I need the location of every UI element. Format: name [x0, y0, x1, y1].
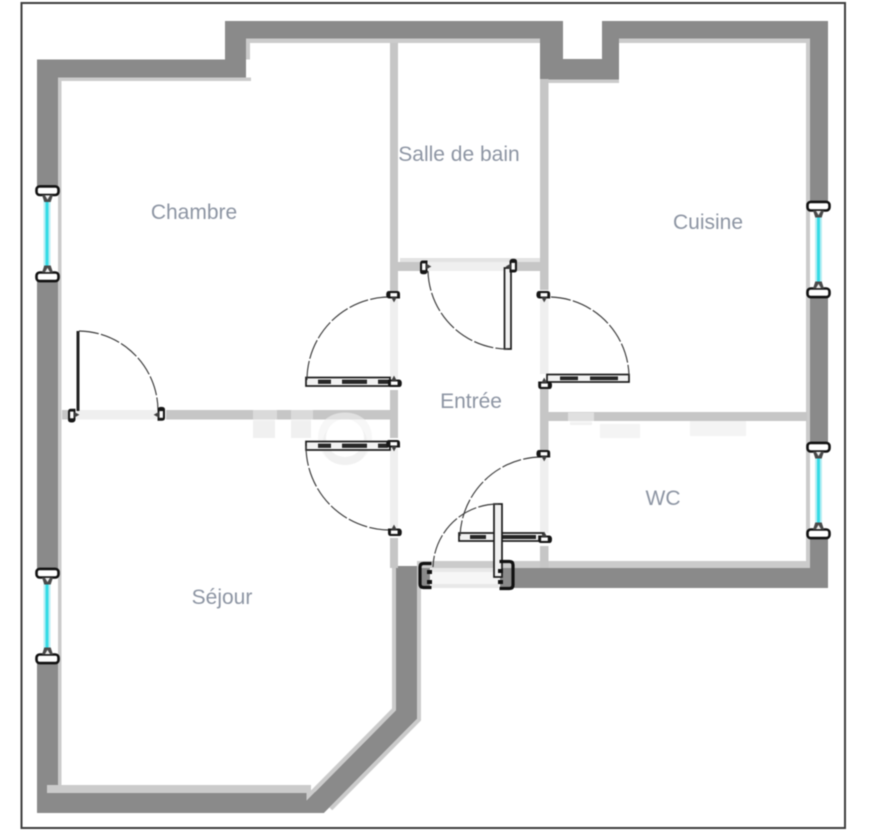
svg-text:Séjour: Séjour	[192, 586, 253, 609]
svg-text:Chambre: Chambre	[151, 201, 237, 224]
svg-text:Cuisine: Cuisine	[673, 211, 743, 234]
svg-text:WC: WC	[646, 487, 681, 510]
svg-text:Salle de bain: Salle de bain	[398, 143, 519, 166]
svg-text:Entrée: Entrée	[440, 390, 502, 413]
